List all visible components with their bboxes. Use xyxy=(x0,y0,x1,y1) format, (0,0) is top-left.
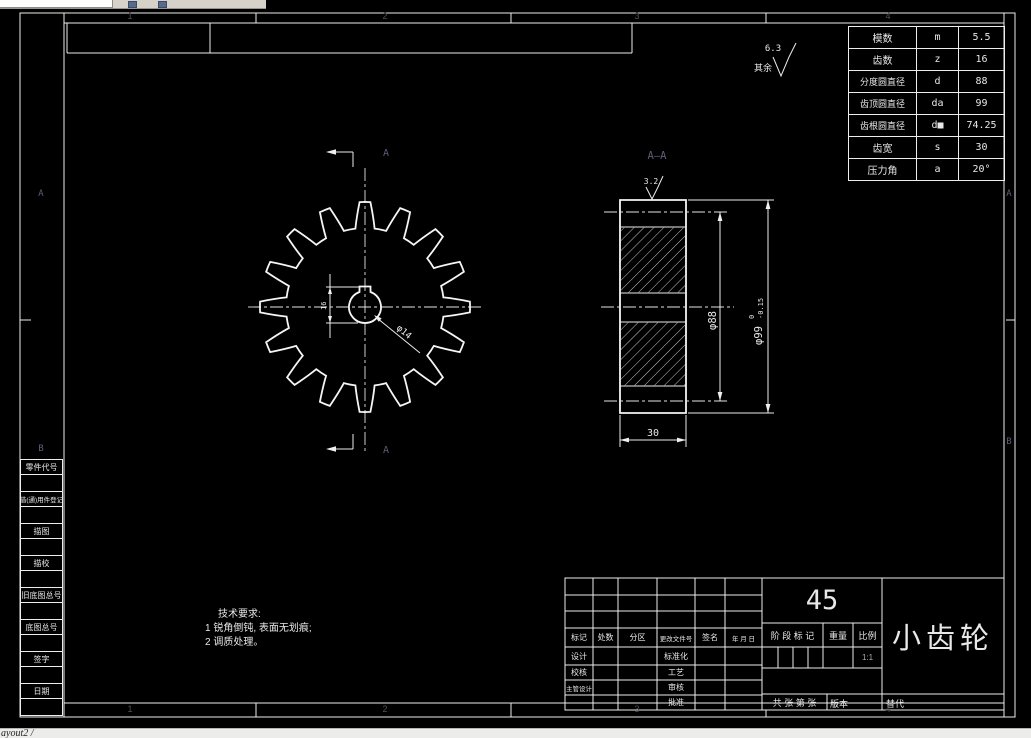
cad-application-window: A B A B A A xyxy=(0,0,1031,738)
gear-front-view: A A 16 φ14 xyxy=(248,148,482,456)
rev-header-1: 处数 xyxy=(593,628,618,647)
keyway-dimension xyxy=(326,274,360,338)
stage-mark-label: 阶 段 标 记 xyxy=(762,623,823,647)
zone-number-bottom-3: 3 xyxy=(634,704,639,714)
param-symbol-5: s xyxy=(916,136,958,158)
rev-header-2: 分区 xyxy=(618,628,657,647)
gear-section-view: A—A 3.2 φ88 xyxy=(601,150,774,447)
replace-label: 替代 xyxy=(886,697,946,710)
rev-header-5: 年 月 日 xyxy=(725,628,762,647)
margin-box-empty-0 xyxy=(20,474,63,492)
param-symbol-2: d xyxy=(916,70,958,92)
tech-req-title: 技术要求: xyxy=(218,608,312,622)
param-value-0: 5.5 xyxy=(958,26,1004,48)
keyway-dim-text: 16 xyxy=(320,302,328,310)
param-name-5: 齿宽 xyxy=(848,136,916,158)
param-symbol-4: d■ xyxy=(916,114,958,136)
zone-letter-b-left: B xyxy=(38,444,43,454)
param-value-1: 16 xyxy=(958,48,1004,70)
param-name-1: 齿数 xyxy=(848,48,916,70)
tip-dim-text: φ99 xyxy=(753,326,765,345)
layout-tab[interactable]: ayout2 / xyxy=(1,728,34,738)
top-toolbar-strip xyxy=(0,0,266,9)
rev-header-4: 签名 xyxy=(695,628,725,647)
zone-letter-a-left: A xyxy=(38,189,44,199)
material-label: 45 xyxy=(762,578,882,623)
param-name-0: 模数 xyxy=(848,26,916,48)
param-name-2: 分度圆直径 xyxy=(848,70,916,92)
zone-letter-a-right: A xyxy=(1006,189,1012,199)
sign-label-2-0: 主管设计 xyxy=(565,680,593,695)
rev-header-3: 更改文件号 xyxy=(657,628,695,647)
section-label-bottom: A xyxy=(383,445,389,456)
hatch-upper xyxy=(621,228,686,293)
width-dim-text: 30 xyxy=(647,428,659,439)
zone-number-bottom-1: 1 xyxy=(127,704,132,714)
margin-box-empty-2 xyxy=(20,538,63,556)
param-name-6: 压力角 xyxy=(848,158,916,180)
bore-leader xyxy=(374,315,420,353)
margin-box-2: 描图 xyxy=(20,523,63,539)
margin-box-empty-4 xyxy=(20,602,63,620)
roughness-value: 3.2 xyxy=(644,177,659,186)
sign-label-1-0: 校核 xyxy=(565,665,593,680)
zone-number-top-4: 4 xyxy=(885,11,890,21)
margin-box-4: 旧底图总号 xyxy=(20,587,63,603)
margin-register-boxes: 零件代号借(通)用件登记描图描校旧底图总号底图总号签字日期 xyxy=(20,460,63,716)
scale-value: 1:1 xyxy=(853,647,882,668)
general-roughness-value: 6.3 xyxy=(765,44,781,54)
section-label-top: A xyxy=(383,148,389,159)
scale-label: 比例 xyxy=(853,623,882,647)
zone-letter-b-right: B xyxy=(1006,437,1011,447)
sheet-count-label: 共 张 第 张 xyxy=(762,694,827,710)
toolbar-icon-zoom[interactable] xyxy=(128,1,137,8)
rev-header-0: 标记 xyxy=(565,628,593,647)
param-value-4: 74.25 xyxy=(958,114,1004,136)
param-symbol-0: m xyxy=(916,26,958,48)
param-name-3: 齿顶圆直径 xyxy=(848,92,916,114)
technical-requirements: 技术要求: 1 锐角倒钝, 表面无划痕; 2 调质处理。 xyxy=(205,608,312,650)
margin-box-1: 借(通)用件登记 xyxy=(20,491,63,507)
param-value-2: 88 xyxy=(958,70,1004,92)
pitch-diameter-dimension xyxy=(718,212,723,401)
sign-label-3-1: 批准 xyxy=(657,695,695,710)
toolbar-icon-pan[interactable] xyxy=(158,1,167,8)
zone-number-bottom-4: 4 xyxy=(885,704,890,714)
command-input[interactable] xyxy=(0,0,113,8)
param-value-5: 30 xyxy=(958,136,1004,158)
margin-box-empty-1 xyxy=(20,506,63,524)
param-name-4: 齿根圆直径 xyxy=(848,114,916,136)
param-symbol-1: z xyxy=(916,48,958,70)
section-title: A—A xyxy=(648,150,668,162)
section-mark-bottom xyxy=(326,434,353,452)
zone-number-top-3: 3 xyxy=(634,11,639,21)
tech-req-line-1: 1 锐角倒钝, 表面无划痕; xyxy=(205,622,312,636)
margin-box-empty-7 xyxy=(20,698,63,716)
margin-box-5: 底图总号 xyxy=(20,619,63,635)
zone-number-top-2: 2 xyxy=(382,11,387,21)
tip-dim-tol-lower: -0.15 xyxy=(757,298,765,319)
general-roughness-label: 其余 xyxy=(742,61,772,74)
param-symbol-3: da xyxy=(916,92,958,114)
bore-dim-text: φ14 xyxy=(394,324,413,342)
param-value-3: 99 xyxy=(958,92,1004,114)
zone-number-top-1: 1 xyxy=(127,11,132,21)
pitch-dim-text: φ88 xyxy=(707,311,719,330)
tip-dim-tol-upper: 0 xyxy=(748,315,756,319)
margin-box-empty-3 xyxy=(20,570,63,588)
sign-label-2-1: 审核 xyxy=(657,680,695,695)
gear-parameter-table: 模数m5.5齿数z16分度圆直径d88齿顶圆直径da99齿根圆直径d■74.25… xyxy=(848,26,1005,181)
zone-number-bottom-2: 2 xyxy=(382,704,387,714)
margin-box-empty-5 xyxy=(20,634,63,652)
section-mark-top xyxy=(326,149,353,167)
margin-box-empty-6 xyxy=(20,666,63,684)
hatch-lower xyxy=(621,323,686,386)
margin-box-3: 描校 xyxy=(20,555,63,571)
tech-req-line-2: 2 调质处理。 xyxy=(205,636,312,650)
layout-tab-bar: ayout2 / xyxy=(0,728,1031,738)
margin-box-0: 零件代号 xyxy=(20,459,63,475)
sign-label-1-1: 工艺 xyxy=(657,665,695,680)
param-symbol-6: a xyxy=(916,158,958,180)
param-value-6: 20° xyxy=(958,158,1004,180)
sign-label-0-0: 设计 xyxy=(565,647,593,665)
sign-label-0-1: 标准化 xyxy=(657,647,695,665)
margin-box-6: 签字 xyxy=(20,651,63,667)
version-label: 版本 xyxy=(830,697,880,710)
weight-label: 重量 xyxy=(823,623,853,647)
part-name: 小齿轮 xyxy=(882,578,1004,694)
margin-box-7: 日期 xyxy=(20,683,63,699)
